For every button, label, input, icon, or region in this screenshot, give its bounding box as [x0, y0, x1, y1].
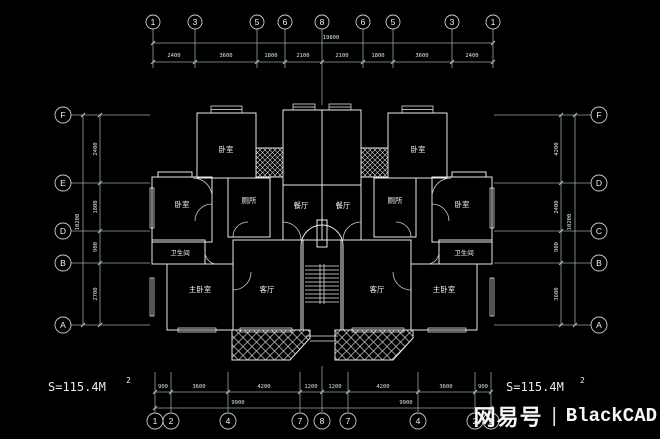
dim-text: 900 — [93, 242, 99, 252]
window — [150, 278, 154, 316]
grid-stems-right — [494, 115, 591, 325]
cad-floorplan-screenshot: 2400 3600 1800 2100 2100 1800 3600 2400 … — [0, 0, 660, 439]
door-arc — [233, 222, 248, 237]
grid-bubble-label: A — [60, 320, 66, 330]
grid-bubble-label: 5 — [255, 17, 260, 27]
door-arc — [393, 272, 411, 290]
area-sup-right: 2 — [580, 376, 585, 385]
dim-text: 4200 — [554, 142, 560, 155]
room-kitchen-right — [322, 110, 361, 185]
dim-text-overall-right: 10200 — [567, 214, 573, 231]
dim-text-overall-left: 10200 — [75, 214, 81, 231]
dim-text: 3600 — [439, 384, 452, 390]
area-label-left: S=115.4M — [48, 380, 106, 394]
door-arc — [432, 204, 449, 221]
door-arc — [195, 204, 212, 221]
dim-text-overall-bottom-right: 9900 — [399, 400, 412, 406]
grid-bubble-label: 3 — [450, 17, 455, 27]
stair-walls — [301, 245, 343, 330]
dim-text: 900 — [478, 384, 488, 390]
room-bedroom-side-left — [152, 177, 212, 242]
room-label: 主卧室 — [189, 284, 212, 294]
grid-bubble-label: B — [596, 258, 602, 268]
room-label: 卫生间 — [170, 248, 190, 257]
dim-text: 2400 — [167, 53, 180, 59]
grid-bubble-label: A — [596, 320, 602, 330]
shaft-hatch-left — [256, 148, 283, 177]
window — [402, 106, 433, 113]
grid-bubble-label: 3 — [193, 17, 198, 27]
dim-tick-marks — [81, 41, 577, 410]
room-label: 客厅 — [260, 284, 275, 294]
dim-text: 2100 — [335, 53, 348, 59]
room-bedroom-side-right — [432, 177, 492, 242]
grid-bubble-label: 7 — [298, 416, 303, 426]
shaft-hatch-right — [361, 148, 388, 177]
entry-steps — [306, 336, 338, 341]
dim-text: 3600 — [219, 53, 232, 59]
door-arc — [343, 222, 361, 240]
room-label: 主卧室 — [433, 284, 456, 294]
watermark-divider: | — [552, 405, 557, 428]
stair-treads — [305, 266, 339, 302]
window — [490, 278, 494, 316]
window — [329, 104, 351, 110]
dim-text: 3600 — [415, 53, 428, 59]
grid-bubble-label: 1 — [151, 17, 156, 27]
dim-text: 2100 — [296, 53, 309, 59]
dim-text: 1200 — [304, 384, 317, 390]
grid-bubble-label: 8 — [320, 416, 325, 426]
dim-text-overall-bottom-left: 9900 — [231, 400, 244, 406]
dim-text: 2700 — [93, 287, 99, 300]
dim-text: 4200 — [376, 384, 389, 390]
dim-chain-lines-bottom — [155, 392, 491, 408]
room-kitchen-left — [283, 110, 322, 185]
balconies — [232, 330, 413, 360]
grid-bubble-label: 2 — [169, 416, 174, 426]
floorplan-drawing: 2400 3600 1800 2100 2100 1800 3600 2400 … — [0, 0, 660, 439]
dim-text: 3600 — [192, 384, 205, 390]
watermark: 网易号 | BlackCAD — [474, 400, 657, 432]
window — [490, 188, 494, 228]
grid-bubble-label: D — [596, 178, 602, 188]
door-arc — [427, 252, 439, 264]
door-arc — [432, 178, 451, 197]
door-arc — [283, 222, 301, 240]
dim-text: 1800 — [371, 53, 384, 59]
dim-ticks-top — [151, 41, 495, 64]
room-dining-left — [283, 185, 322, 240]
balcony-left — [232, 330, 310, 360]
room-master-right — [411, 264, 477, 330]
dim-text: 3600 — [554, 287, 560, 300]
dim-text: 1800 — [264, 53, 277, 59]
window — [211, 106, 242, 113]
room-label: 餐厅 — [294, 201, 309, 210]
room-dining-right — [322, 185, 361, 240]
window — [178, 328, 216, 332]
room-label: 卧室 — [175, 199, 190, 209]
room-label: 客厅 — [370, 284, 385, 294]
dim-text: 2400 — [93, 142, 99, 155]
dim-text-overall-top: 19800 — [323, 35, 340, 41]
grid-bubble-circles — [55, 15, 607, 429]
watermark-brand-logo: 网易号 — [474, 400, 543, 432]
room-label: 厕所 — [242, 195, 257, 205]
grid-bubble-label: 5 — [391, 17, 396, 27]
door-arc — [396, 222, 411, 237]
grid-bubble-label: F — [596, 110, 601, 120]
room-master-left — [167, 264, 233, 330]
grid-bubble-label: B — [60, 258, 66, 268]
grid-bubble-label: 6 — [361, 17, 366, 27]
room-label: 卧室 — [219, 144, 234, 154]
dim-text: 2400 — [465, 53, 478, 59]
room-label: 卫生间 — [454, 248, 474, 257]
watermark-name: BlackCAD — [566, 405, 657, 427]
dim-text: 1200 — [328, 384, 341, 390]
room-label: 厕所 — [388, 195, 403, 205]
grid-bubble-labels: 1 3 5 6 8 6 5 3 1 1 2 4 7 8 7 4 2 1 F E … — [60, 17, 602, 426]
dim-text: 900 — [554, 242, 560, 252]
grid-bubble-label: 1 — [153, 416, 158, 426]
window — [150, 188, 154, 228]
room-label: 卧室 — [455, 199, 470, 209]
grid-axes — [71, 29, 591, 412]
dim-text: 2400 — [554, 200, 560, 213]
door-arc — [205, 252, 217, 264]
dim-text: 1800 — [93, 200, 99, 213]
room-toilet-right — [374, 178, 416, 237]
dim-text: 4200 — [257, 384, 270, 390]
balcony-right — [335, 330, 413, 360]
room-label: 餐厅 — [336, 201, 351, 210]
grid-bubble-label: 7 — [346, 416, 351, 426]
room-toilet-left — [228, 178, 270, 237]
grid-bubble-label: E — [60, 178, 66, 188]
grid-bubble-label: 8 — [320, 17, 325, 27]
grid-bubble-label: D — [60, 226, 66, 236]
grid-bubble-label: C — [596, 226, 602, 236]
dim-chain-lines-top — [153, 43, 493, 62]
door-arc — [193, 178, 212, 197]
window — [293, 104, 315, 110]
grid-bubble-label: 4 — [226, 416, 231, 426]
dim-ticks-bottom — [153, 390, 493, 410]
grid-bubble-label: 1 — [491, 17, 496, 27]
grid-bubble-label: F — [60, 110, 65, 120]
dim-text: 900 — [158, 384, 168, 390]
window — [428, 328, 466, 332]
grid-bubble-label: 4 — [416, 416, 421, 426]
area-label-right: S=115.4M — [506, 380, 564, 394]
room-label: 卧室 — [411, 144, 426, 154]
door-arc — [233, 272, 251, 290]
grid-bubble-label: 6 — [283, 17, 288, 27]
area-sup-left: 2 — [126, 376, 131, 385]
